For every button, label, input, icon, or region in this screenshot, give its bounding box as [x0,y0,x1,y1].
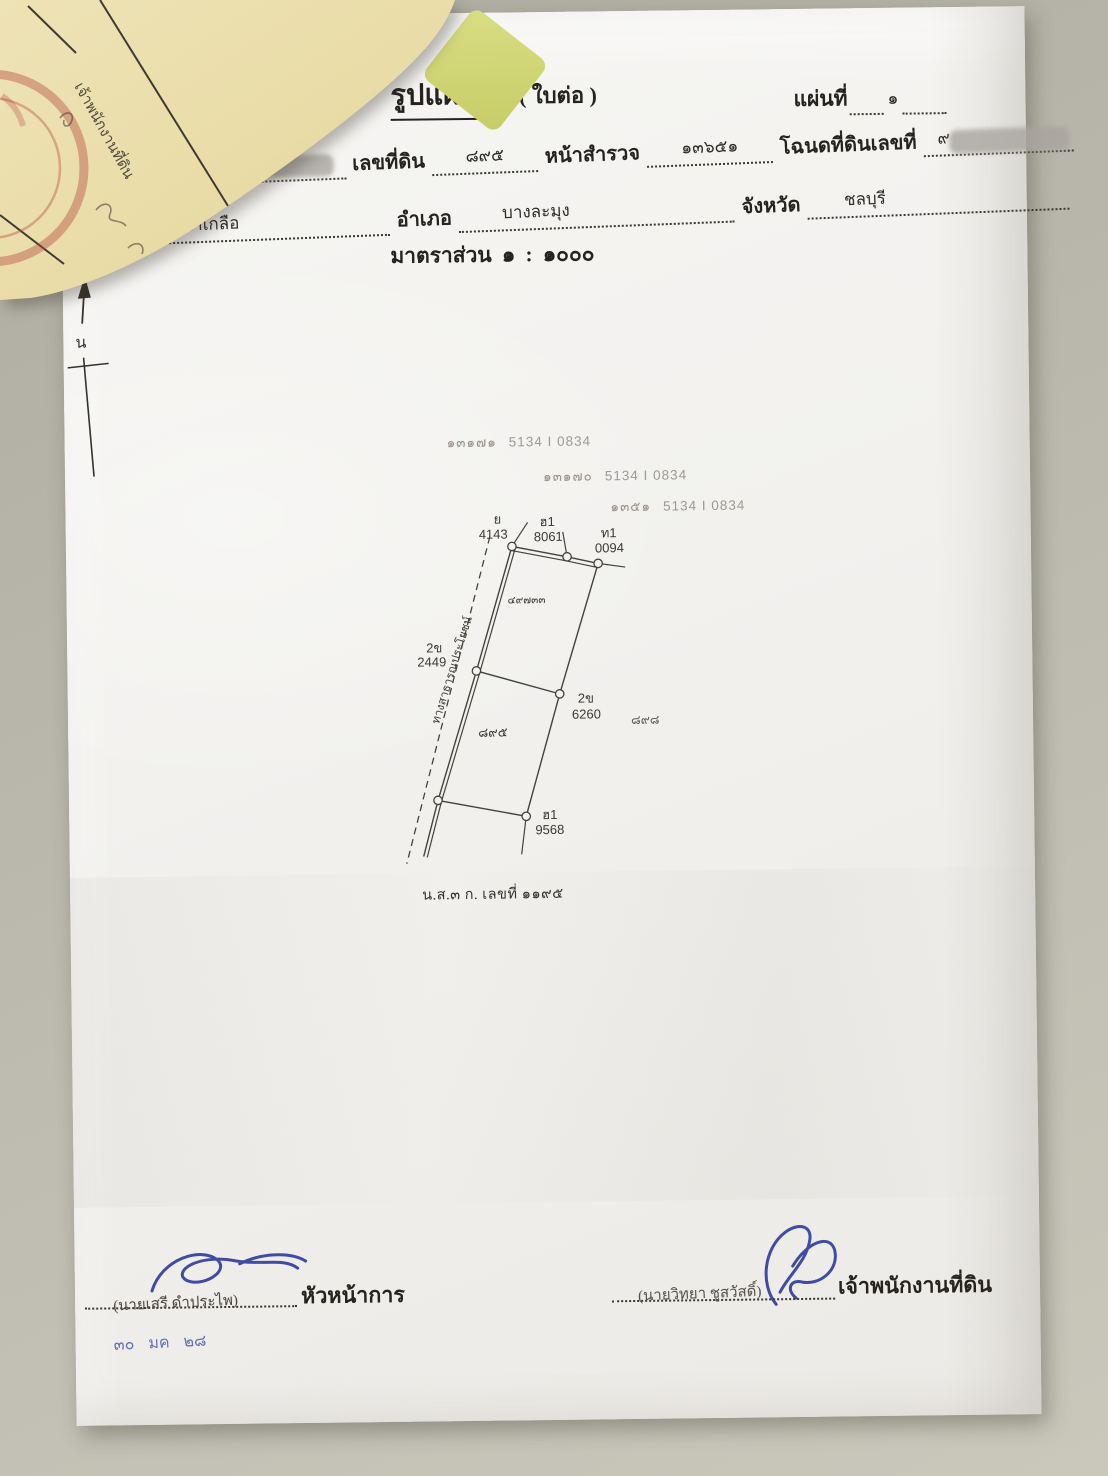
vertex-number: 4143 [479,527,508,542]
vertex-label: 2ข [426,640,442,655]
deed-label: โฉนดที่ดินเลขที่ [779,126,917,163]
map-caption: น.ส.๓ ก. เลขที่ ๑๑๙๕ [422,882,564,907]
survey-vertex-circles [431,541,606,821]
north-label: น [75,335,86,352]
vertex-label: ฮ1 [540,514,555,529]
date-note: ๓๐ มค ๒๘ [113,1329,207,1358]
sheet-label: แผ่นที่ [793,82,847,116]
paper-crease [70,866,1039,1208]
vertex-number: 6260 [572,706,601,721]
dotted-line [850,97,884,115]
cadastral-map: ย 4143 ฮ1 8061 ท1 0094 2ข 2449 2ข 6260 ฮ… [380,480,745,884]
dotted-line [902,96,946,115]
vertex-number: 9568 [535,822,564,837]
adjacent-parcel-number: ๘๙๘ [631,713,660,727]
signature-block-left: (นายเสรี ดำประไพ) หัวหน้าการ ๓๐ มค ๒๘ [84,1234,516,1369]
survey-stamp-line: ๑๓๑๗๑5134 I 0834 [447,429,592,453]
lower-parcel-number: ๘๙๕ [478,725,508,740]
stamp-thai-number: ๑๓๑๗๑ [447,435,497,451]
signatory-title: เจ้าพนักงานที่ดิน [838,1268,992,1304]
deed-dotted-line: ๙ [923,133,1074,157]
vertex-label: ย [493,512,501,527]
vertex-number: 2449 [417,654,446,669]
signatory-name: (นายเสรี ดำประไพ) [113,1288,239,1318]
signature-block-right: (นายวิทยา ชูสวัสดิ์) เจ้าพนักงานที่ดิน [609,1211,1060,1326]
vertex-label: 2ข [578,690,594,705]
vertex-number: 8061 [534,529,563,544]
sheet-number-field: แผ่นที่ ๑ [793,81,946,116]
parcel-boundaries [403,521,629,864]
stamp-code: 5134 I 0834 [509,433,592,449]
survey-page-value: ๑๓๖๕๑ [681,132,739,161]
signatory-title: หัวหน้าการ [301,1278,405,1313]
signatory-name: (นายวิทยา ชูสวัสดิ์) [638,1279,762,1308]
deed-value: ๙ [937,124,950,151]
old-document: เจ้าพนักงานที่ดิน [0,0,560,330]
province-value: ชลบุรี [843,185,886,214]
province-label: จังหวัด [741,188,801,222]
sheet-value: ๑ [885,85,900,115]
vertex-label: ฮ1 [542,807,557,822]
road-label: ทางสาธารณประโยชน์ [428,614,475,725]
photo-scene: รูปแผนที่ ( ใบต่อ ) แผ่นที่ ๑ ที่ดินระวา… [0,0,1108,1476]
upper-parcel-number: ๔๙๗๓๓ [508,594,546,606]
redaction-blur [949,126,1070,155]
vertex-number: 0094 [595,540,624,555]
survey-page-dotted-line: ๑๓๖๕๑ [647,145,774,168]
paper-edge-shade [929,6,1041,1415]
vertex-label: ท1 [601,525,617,540]
